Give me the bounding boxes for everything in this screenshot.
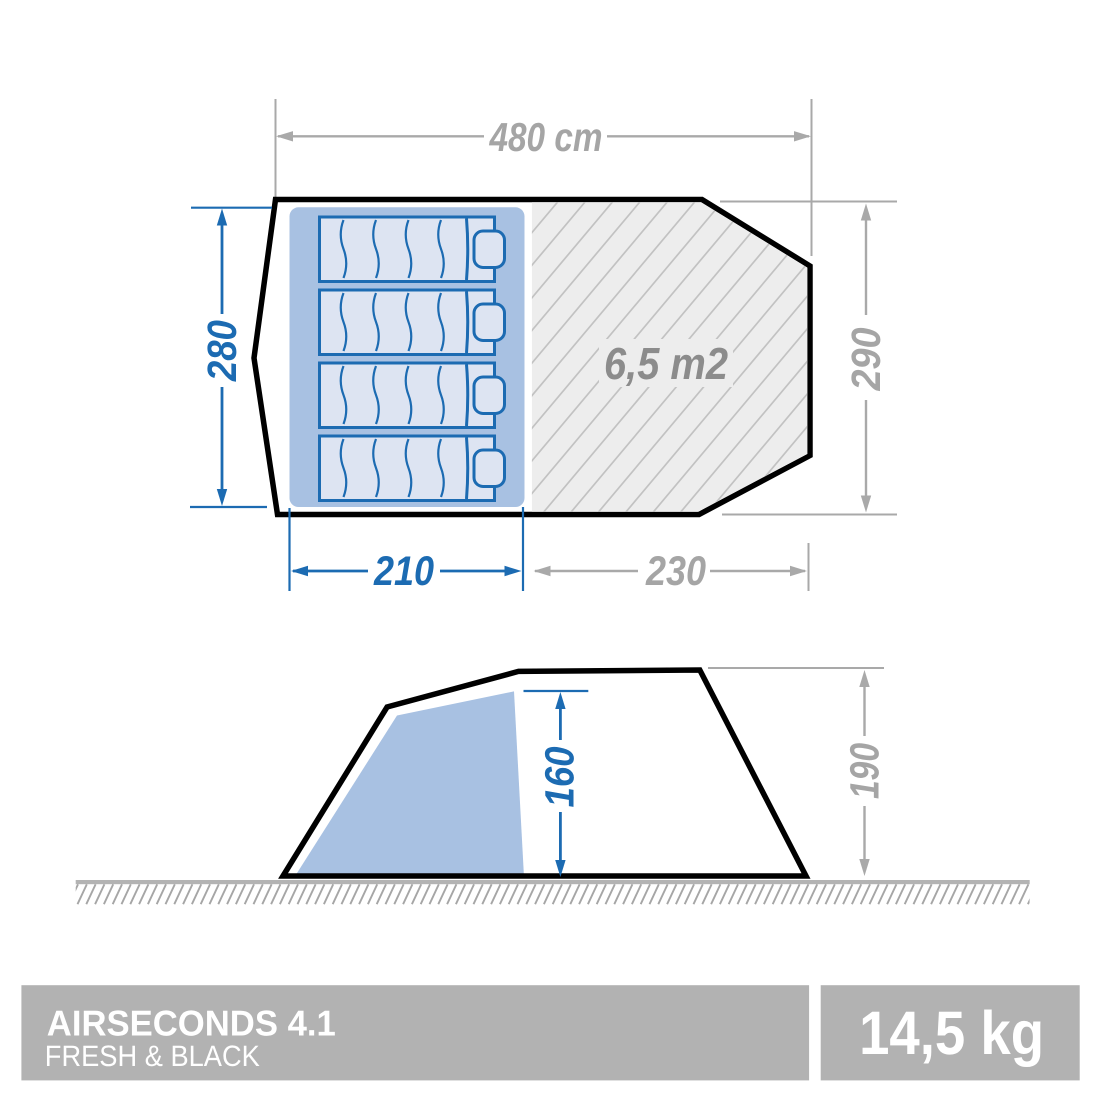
- svg-text:280: 280: [199, 320, 245, 382]
- svg-text:6,5 m2: 6,5 m2: [604, 338, 728, 389]
- svg-text:FRESH & BLACK: FRESH & BLACK: [45, 1040, 260, 1073]
- svg-text:190: 190: [842, 743, 888, 799]
- svg-text:210: 210: [373, 547, 434, 594]
- svg-text:230: 230: [645, 547, 706, 594]
- svg-text:480 cm: 480 cm: [489, 114, 603, 160]
- svg-text:14,5 kg: 14,5 kg: [859, 999, 1044, 1068]
- svg-text:160: 160: [537, 746, 583, 807]
- svg-text:AIRSECONDS 4.1: AIRSECONDS 4.1: [47, 1002, 336, 1043]
- svg-text:290: 290: [843, 327, 889, 391]
